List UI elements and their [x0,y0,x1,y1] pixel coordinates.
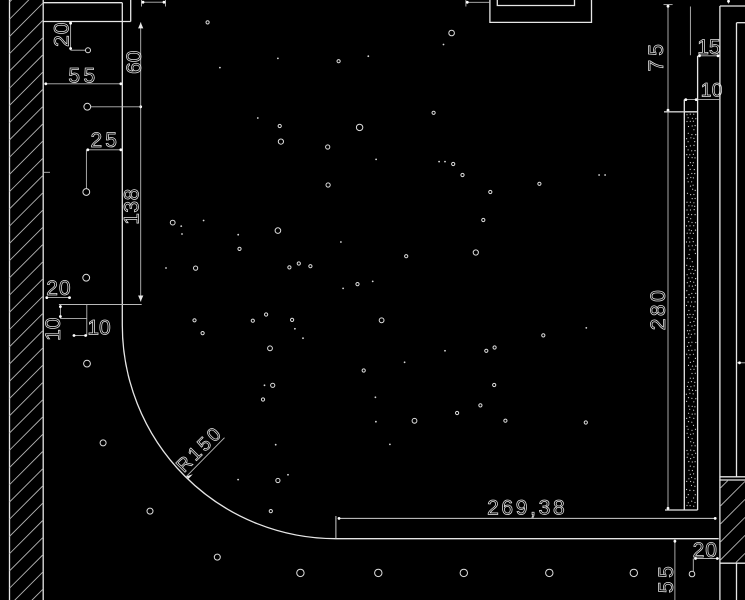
svg-text:60: 60 [123,51,146,74]
svg-text:15: 15 [697,36,720,59]
svg-text:20: 20 [693,539,718,562]
svg-text:55: 55 [655,563,678,593]
svg-text:20: 20 [46,277,71,300]
svg-text:10: 10 [42,318,65,341]
svg-text:269,38: 269,38 [487,496,567,519]
svg-text:138: 138 [120,188,143,225]
svg-text:280: 280 [647,288,670,331]
svg-text:75: 75 [645,40,668,71]
svg-text:20: 20 [51,22,74,47]
svg-text:25: 25 [91,129,120,152]
svg-text:10: 10 [87,317,110,340]
svg-text:55: 55 [68,64,98,87]
svg-text:10: 10 [701,81,723,102]
